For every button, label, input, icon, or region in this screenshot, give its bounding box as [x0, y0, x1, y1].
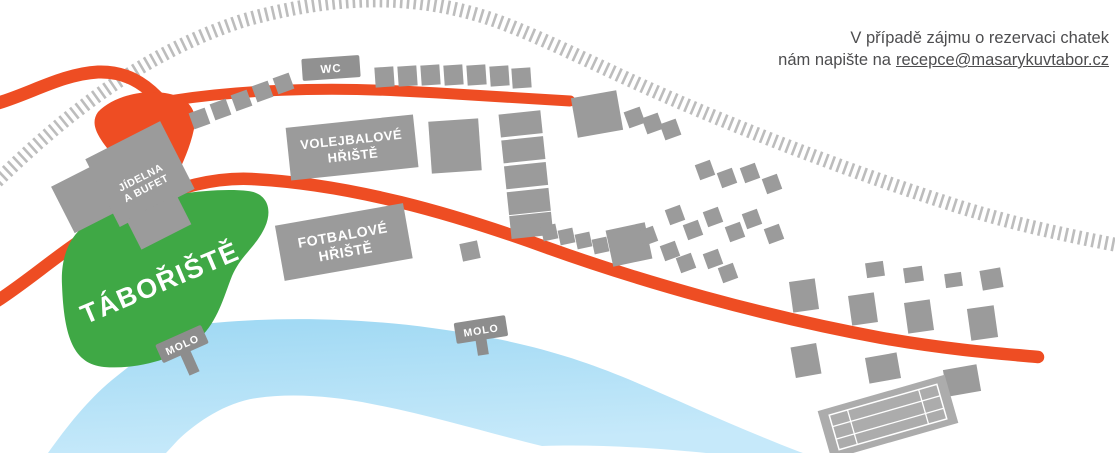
tennis-court: [818, 375, 959, 453]
cabin: [374, 66, 394, 87]
cabin: [575, 232, 593, 250]
cabin: [791, 343, 822, 378]
cabin: [740, 163, 761, 184]
cabin: [865, 261, 885, 278]
building: [504, 162, 548, 189]
cabins-scattered-cluster: [638, 160, 785, 284]
cabins-wc-row: [374, 64, 531, 88]
cabin: [624, 107, 646, 129]
cabin: [642, 113, 664, 135]
building: [507, 188, 551, 215]
cabin: [703, 249, 724, 270]
cabin: [725, 222, 746, 243]
cabin: [703, 207, 724, 228]
note-line2-prefix: nám napište na: [778, 51, 891, 69]
cabin: [466, 64, 486, 85]
cabin: [541, 224, 559, 242]
cabin: [762, 174, 783, 195]
cabin: [904, 299, 934, 333]
cabin: [252, 81, 274, 103]
note-line1: V případě zájmu o rezervaci chatek: [778, 27, 1109, 49]
cabin: [903, 266, 924, 283]
cabin: [558, 228, 576, 246]
cabin: [489, 65, 509, 86]
cabin: [865, 352, 901, 383]
reservation-note: V případě zájmu o rezervaci chatek nám n…: [778, 27, 1109, 71]
buildings-column: [499, 110, 554, 239]
cabin: [764, 224, 785, 245]
cabin: [665, 205, 686, 226]
cabin: [695, 160, 716, 181]
cabin: [660, 119, 682, 141]
cabin: [944, 272, 963, 288]
wc-building: WC: [301, 55, 360, 81]
map-canvas: TÁBOŘIŠTĚ JÍDELNA A BUFET WC VOLEJBALOVÉ…: [0, 0, 1115, 453]
cabin: [210, 99, 232, 121]
email-link[interactable]: recepce@masarykuvtabor.cz: [891, 51, 1109, 69]
building: [501, 136, 545, 163]
note-line2: nám napište narecepce@masarykuvtabor.cz: [778, 49, 1109, 71]
cabin: [420, 64, 440, 85]
cabin: [848, 292, 878, 325]
building: [571, 90, 623, 137]
football-field-sign: FOTBALOVÉ HŘIŠTĚ: [275, 203, 413, 281]
cabin: [683, 220, 704, 241]
cabins-triple: [624, 107, 682, 141]
cabin: [443, 64, 463, 85]
cabin: [967, 305, 998, 340]
wc-label: WC: [320, 63, 342, 76]
cabin: [979, 267, 1003, 290]
cabin: [511, 67, 531, 88]
cabin: [718, 263, 739, 284]
cabin: [717, 168, 738, 189]
building: [499, 110, 543, 137]
volleyball-court: VOLEJBALOVÉ HŘIŠTĚ: [286, 114, 419, 180]
cabin: [742, 209, 763, 230]
building: [428, 118, 482, 173]
cabin: [592, 237, 610, 255]
cabin: [789, 278, 819, 312]
cabin: [459, 240, 480, 261]
cabin: [397, 65, 417, 86]
